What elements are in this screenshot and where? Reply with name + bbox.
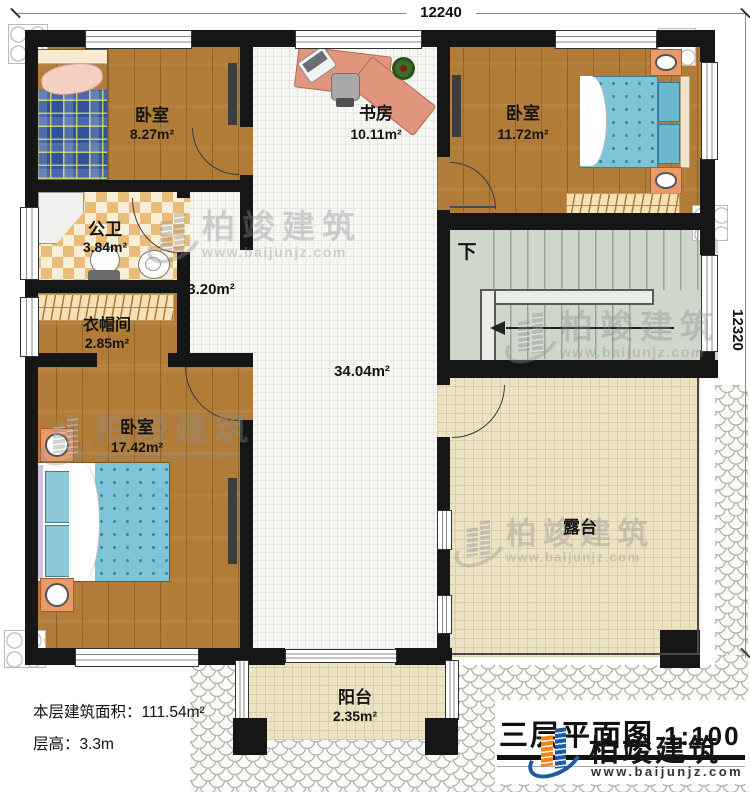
bedroom2-label: 卧室	[473, 104, 573, 124]
wall	[437, 47, 450, 157]
logo-website: www.baijunjz.com	[591, 764, 743, 779]
wall	[420, 30, 555, 47]
bed2-headboard	[680, 76, 690, 168]
bed2-pillow	[658, 82, 680, 122]
bed-double	[36, 462, 170, 582]
hall-area: 34.04m²	[322, 364, 402, 380]
bed-pillow	[45, 525, 71, 577]
watermark-website: www.baijunjz.com	[506, 549, 655, 564]
tv-bedroom1	[228, 63, 237, 125]
company-logo: 柏竣建筑 www.baijunjz.com	[533, 722, 748, 786]
lamp	[655, 172, 677, 189]
cloakroom-label: 衣帽间	[67, 316, 147, 336]
wall	[437, 437, 450, 510]
bathroom-label: 公卫	[75, 220, 135, 240]
dimension-top-value: 12240	[406, 4, 476, 23]
window	[20, 207, 39, 280]
wall	[437, 213, 715, 230]
bedroom3-label: 卧室	[87, 418, 187, 438]
terrace-edge-right	[697, 378, 699, 655]
tv-bedroom3	[228, 478, 237, 564]
stair-handrail	[480, 289, 654, 305]
bedroom2-area: 11.72m²	[473, 126, 573, 142]
bed2-pillow	[658, 124, 680, 164]
wall	[700, 158, 715, 255]
window	[75, 648, 199, 667]
nightstand	[650, 167, 682, 194]
wall	[437, 360, 718, 378]
balcony-sliding-door	[285, 649, 397, 663]
nightstand	[40, 578, 74, 612]
wall	[177, 252, 190, 367]
balcony-side-wall	[445, 660, 459, 720]
window	[295, 30, 422, 49]
wall	[240, 47, 253, 127]
stair-direction-arrowhead	[490, 321, 505, 335]
wall	[437, 548, 450, 595]
window	[437, 595, 452, 634]
wall	[25, 180, 253, 192]
balcony-area: 2.35m²	[320, 708, 390, 724]
wall	[25, 648, 75, 665]
watermark: 柏竣建筑 www.baijunjz.com	[510, 310, 720, 360]
bed-single	[36, 49, 108, 180]
stairs-down-label: 下	[455, 243, 479, 263]
terrace-label: 露台	[548, 518, 612, 538]
corridor-area: 3.20m²	[180, 282, 242, 298]
brand-building-icon	[459, 519, 498, 564]
floor-plan-canvas: 柏竣建筑 www.baijunjz.com 柏竣建筑 www.baijunjz.…	[0, 0, 750, 798]
bedroom3-area: 17.42m²	[87, 439, 187, 455]
logo-building-icon	[533, 726, 585, 784]
bed-blanket	[95, 463, 169, 581]
lamp	[45, 583, 69, 607]
door-leaf-bedroom2	[450, 206, 495, 208]
cloakroom-area: 2.85m²	[72, 335, 142, 351]
bed-blanket	[37, 90, 107, 179]
floor-area-info: 本层建筑面积：111.54m²	[33, 700, 313, 722]
wall	[25, 280, 190, 293]
watermark-company: 柏竣建筑	[202, 210, 362, 244]
watermark-website: www.baijunjz.com	[202, 244, 362, 260]
window	[20, 297, 39, 357]
bed-pillow	[45, 471, 71, 523]
nightstand	[650, 49, 682, 76]
watermark-website: www.baijunjz.com	[560, 344, 720, 360]
study-label: 书房	[326, 104, 426, 124]
terrace-edge-bottom	[450, 653, 700, 655]
wall	[25, 355, 38, 665]
balcony-label: 阳台	[325, 688, 385, 708]
brand-building-icon	[152, 211, 194, 259]
wall	[655, 30, 702, 47]
desk-chair	[331, 73, 360, 101]
window	[701, 62, 718, 160]
wall	[240, 355, 253, 367]
terrace-corner-column	[660, 630, 700, 668]
lamp	[655, 54, 677, 71]
study-area: 10.11m²	[326, 126, 426, 142]
watermark: 柏竣建筑 www.baijunjz.com	[152, 210, 362, 260]
balcony-column	[233, 718, 267, 755]
wall	[437, 210, 450, 385]
window	[85, 30, 192, 49]
balcony-column	[425, 718, 458, 755]
dimension-right-value: 12320	[726, 295, 746, 365]
bed-headboard	[37, 50, 107, 64]
dimension-line-top	[15, 13, 746, 14]
wall	[177, 180, 190, 198]
wall	[700, 30, 715, 62]
plant	[392, 57, 415, 80]
brand-building-icon	[510, 311, 552, 359]
watermark-company: 柏竣建筑	[560, 310, 720, 344]
bathroom-area: 3.84m²	[70, 239, 140, 255]
bedroom1-area: 8.27m²	[102, 126, 202, 142]
tv-bedroom2	[452, 75, 461, 137]
brand-building-icon	[45, 413, 87, 461]
stair-treads-upper	[493, 230, 700, 290]
bedroom1-label: 卧室	[102, 106, 202, 126]
window	[555, 30, 657, 49]
window	[437, 510, 452, 550]
wall	[190, 30, 295, 47]
floor-height-info: 层高：3.3m	[33, 732, 233, 754]
